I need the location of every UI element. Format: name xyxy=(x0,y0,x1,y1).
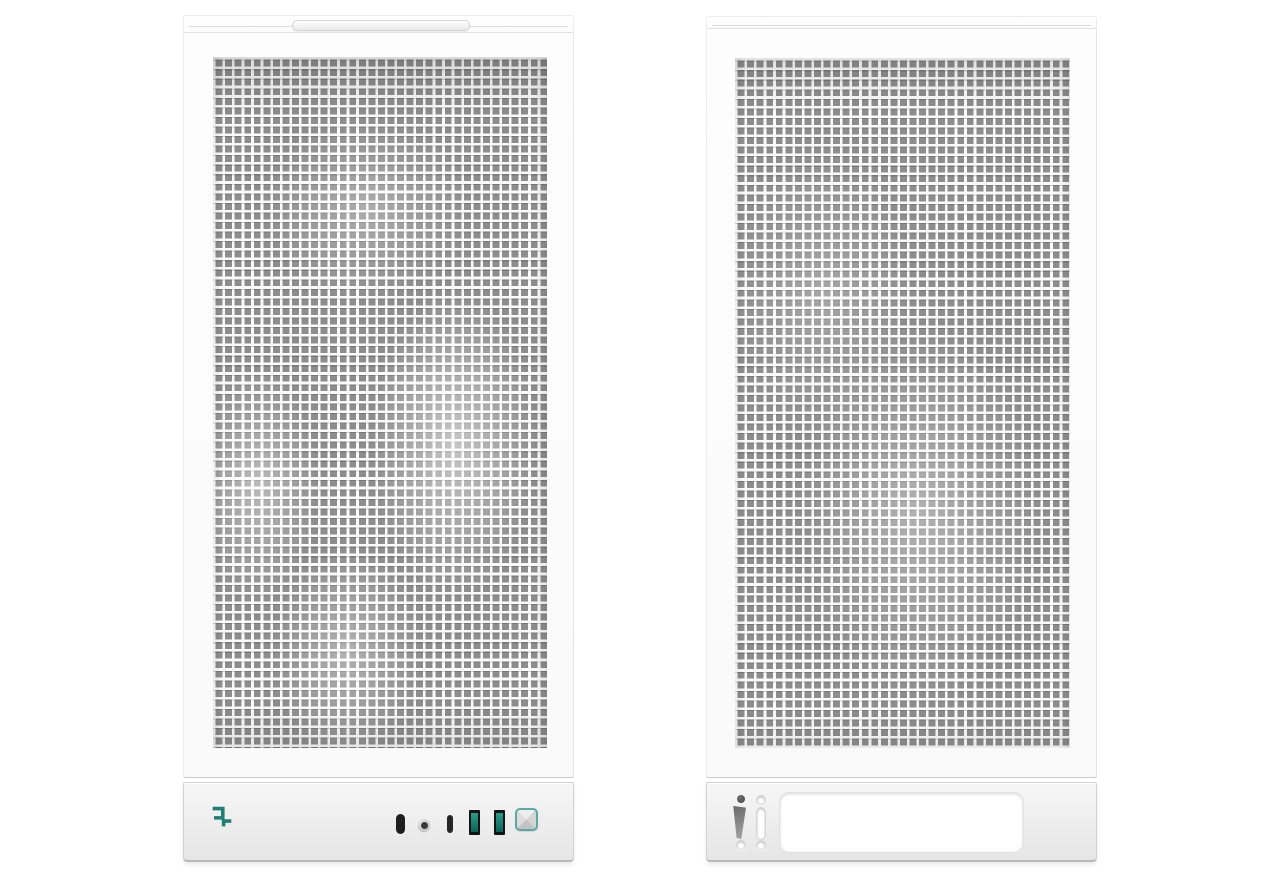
front-mesh-panel xyxy=(183,33,574,778)
logo-upper-step xyxy=(213,809,223,818)
top-seam-line xyxy=(712,25,1091,26)
deepcool-logo-icon xyxy=(210,804,234,828)
product-photo xyxy=(0,0,1280,880)
usb-a-connector-tab xyxy=(471,813,478,832)
pc-case-rear-view xyxy=(706,16,1097,862)
power-button xyxy=(515,808,538,831)
jack-hole xyxy=(421,822,428,829)
usb-c-port xyxy=(396,814,405,834)
rear-mesh-panel xyxy=(706,29,1097,778)
screw-hole xyxy=(756,795,766,805)
top-panel-edge xyxy=(183,15,574,33)
expansion-slot-cutout xyxy=(756,807,766,840)
logo-lower-step xyxy=(224,821,232,826)
mesh-lighting xyxy=(735,58,1070,748)
pc-case-front-view xyxy=(183,15,574,862)
reset-slot xyxy=(447,815,453,833)
thumbscrew-hole xyxy=(737,795,745,803)
headphone-jack xyxy=(418,819,430,831)
usb-a-port-2 xyxy=(494,810,505,835)
usb-a-port-1 xyxy=(469,810,480,835)
screw-hole xyxy=(736,840,746,850)
psu-cutout xyxy=(779,792,1024,853)
screw-hole xyxy=(756,840,766,850)
front-io-panel xyxy=(183,782,574,862)
rear-bottom-panel xyxy=(706,782,1097,862)
top-panel-edge xyxy=(706,16,1097,29)
top-handle-lip xyxy=(292,20,470,31)
usb-a-connector-tab xyxy=(496,813,503,832)
mesh-lighting xyxy=(213,57,547,748)
latch-wedge-cutout xyxy=(733,806,746,839)
